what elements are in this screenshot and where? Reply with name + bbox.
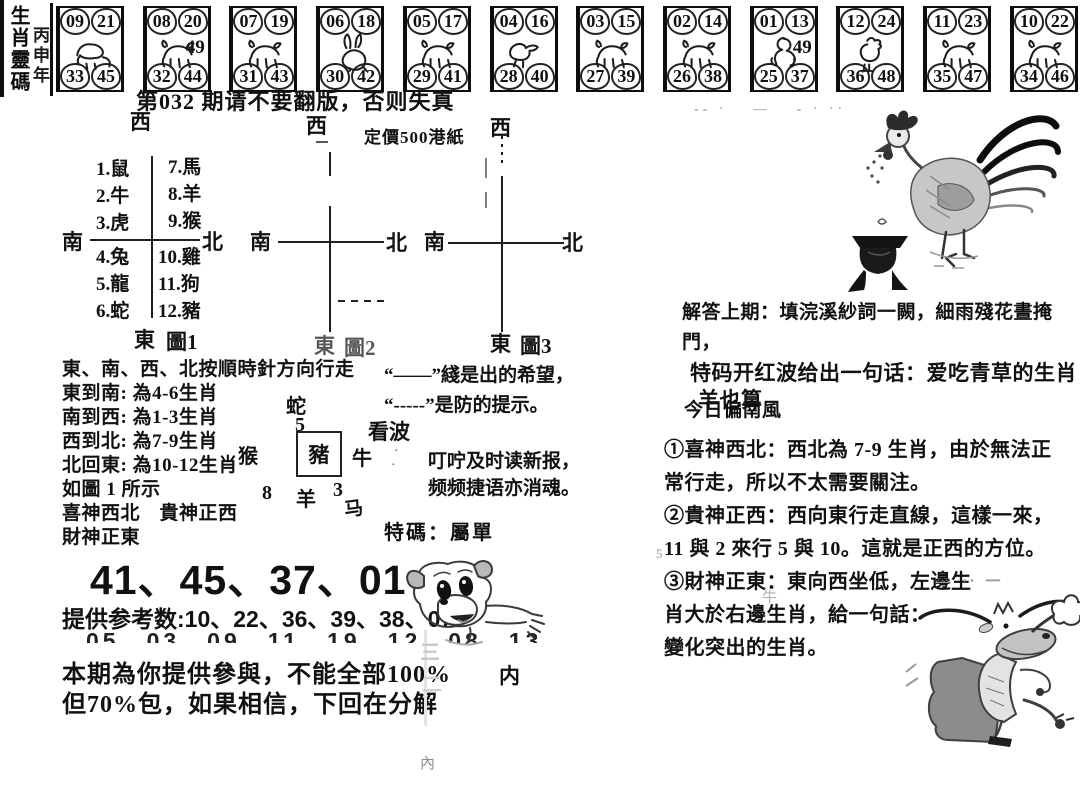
zodiac-table-item: 2.牛 — [96, 183, 129, 210]
mini-cross-number-8: 8 — [262, 482, 272, 505]
zodiac-table-item: 7.馬 — [168, 154, 201, 181]
zodiac-table-item: 4.兔 — [96, 244, 129, 271]
zodiac-table-item: 10.雞 — [158, 244, 201, 271]
verse-line-1: 叮咛及时读新报， — [428, 446, 580, 473]
mini-cross-number-3: 3 — [333, 479, 343, 502]
faded-print-marks-top: -- · — - · ·· — [694, 98, 846, 118]
newspaper-page: 生肖靈碼 丙申年 0921334508203244490719314306183… — [0, 0, 1080, 792]
dashed-line-legend: “-----”是防的提示。 — [384, 390, 549, 417]
zodiac-table-item: 6.蛇 — [96, 298, 129, 325]
diagram1-west-label: 西 — [130, 106, 151, 136]
answer-line: 常行走，所以不太需要關注。 — [664, 467, 1078, 500]
bleed-through-char: 二 — [422, 668, 442, 697]
bleed-through-char: 內 — [420, 752, 435, 773]
answer-line: 11 與 2 來行 5 與 10。這就是正西的方位。 — [664, 533, 1078, 566]
zodiac-table-item: 11.狗 — [158, 271, 201, 298]
rooster-cartoon — [838, 102, 1066, 300]
answer-line: 特码开红波给出一句话：爱吃青草的生肖 — [664, 358, 1078, 388]
disclaimer-side-char: 内 — [499, 660, 520, 690]
answer-line: 今日偏南風 — [664, 398, 1078, 424]
diagram2-west-label: 西 — [306, 110, 327, 140]
zodiac-table-item: 9.猴 — [168, 208, 201, 235]
zodiac-table-item: 3.虎 — [96, 210, 129, 237]
answer-line: ①喜神西北：西北為 7-9 生肖，由於無法正 — [664, 434, 1078, 467]
diagram1-south-label: 南 — [62, 226, 83, 256]
disclaimer-line2: 但70%包，如果相信，下回在分解 — [62, 684, 438, 719]
diagram3-east-label: 東 — [490, 328, 511, 358]
answer-line: ②貴神正西：西向東行走直線，這樣一來， — [664, 500, 1078, 533]
instruction-line: 東、南、西、北按順時針方向行走 — [62, 358, 355, 382]
diagram3-caption: 圖3 — [520, 330, 552, 360]
special-number-hint: 特碼：屬單 — [384, 516, 494, 545]
mini-cross-left: 猴 — [238, 440, 258, 469]
diagram1-caption: 圖1 — [166, 326, 198, 356]
mini-cross-horse: 马 — [342, 493, 365, 522]
puppy-cartoon — [400, 556, 575, 664]
instruction-line: 東到南: 為4-6生肖 — [62, 382, 355, 406]
bleed-through-char: 5 — [656, 546, 663, 562]
diagram3-west-label: 西 — [490, 112, 511, 142]
main-pick-numbers: 41、45、37、01 — [90, 546, 406, 606]
zodiac-table-item: 5.龍 — [96, 271, 129, 298]
bull-cartoon — [898, 584, 1080, 748]
diagram3-north-label: 北 — [562, 227, 583, 257]
diagram2-south-label: 南 — [250, 226, 271, 256]
mini-cross-right: 牛 — [352, 442, 372, 471]
zodiac-table-quadrant-topleft: 1.鼠2.牛3.虎 — [96, 156, 129, 237]
zodiac-table-item: 8.羊 — [168, 181, 201, 208]
zodiac-table-quadrant-bottomleft: 4.兔5.龍6.蛇 — [96, 244, 129, 325]
zodiac-table-quadrant-topright: 7.馬8.羊9.猴 — [168, 154, 201, 235]
zodiac-table-item: 1.鼠 — [96, 156, 129, 183]
zodiac-table-item: 12.豬 — [158, 298, 201, 325]
diagram2-east-label: 東 — [314, 330, 335, 360]
diagram3-south-label: 南 — [424, 226, 445, 256]
diagram1-north-label: 北 — [202, 226, 223, 256]
zodiac-table-quadrant-bottomright: 10.雞11.狗12.豬 — [158, 244, 201, 325]
mini-cross-center-box: 豬 — [296, 431, 342, 477]
diagram1-east-label: 東 — [134, 324, 155, 354]
verse-line-2: 频频捷语亦消魂。 — [428, 473, 580, 500]
watch-wave-note: 看波 — [368, 416, 410, 446]
solid-line-legend: “——”綫是出的希望， — [384, 360, 574, 387]
bleed-through-char: 牛 — [762, 586, 777, 607]
instruction-line: 南到西: 為1-3生肖 — [62, 406, 355, 430]
mini-cross-bottom: 羊 — [296, 483, 316, 512]
speck-mark: · — [391, 458, 396, 474]
answer-line: 解答上期：填浣溪紗詞一闕，細雨殘花晝掩門， — [664, 298, 1078, 358]
diagram2-north-label: 北 — [386, 227, 407, 257]
